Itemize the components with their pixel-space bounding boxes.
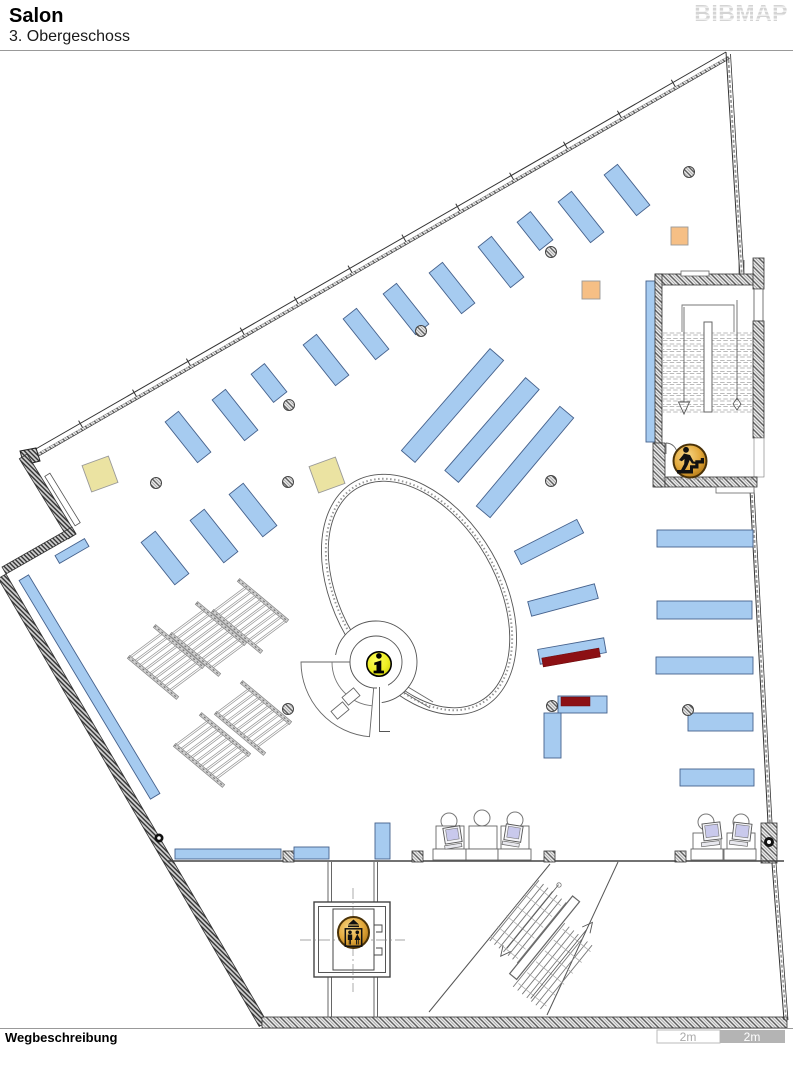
svg-text:BIBMAP: BIBMAP xyxy=(694,0,788,26)
svg-text:2m: 2m xyxy=(680,1030,697,1044)
svg-text:Salon: Salon xyxy=(9,5,63,27)
svg-text:2m: 2m xyxy=(744,1030,761,1044)
svg-text:Wegbeschreibung: Wegbeschreibung xyxy=(5,1030,118,1045)
svg-text:3. Obergeschoss: 3. Obergeschoss xyxy=(9,28,130,45)
